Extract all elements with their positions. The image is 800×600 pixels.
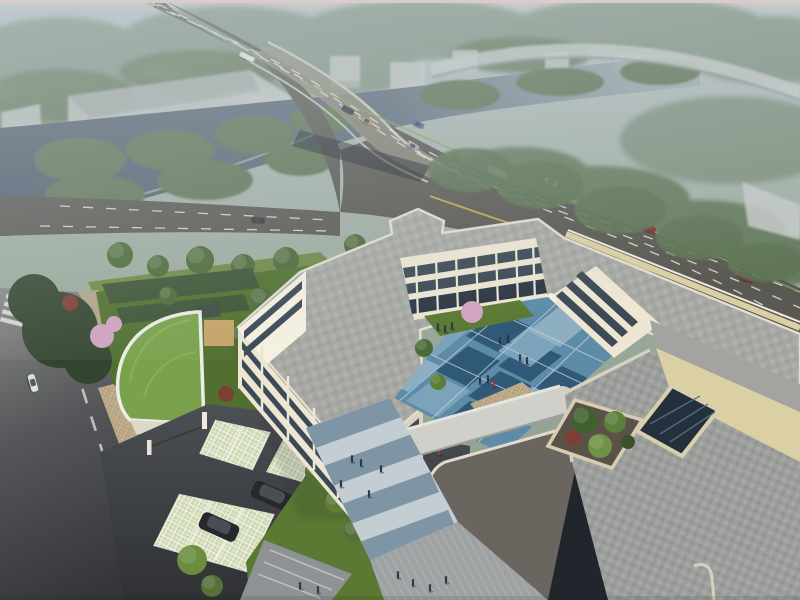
rendering-canvas	[0, 0, 800, 600]
haze-overlay	[0, 0, 800, 360]
top-border-strip	[0, 0, 800, 3]
gate-pillar-2	[147, 440, 152, 455]
bottom-vignette	[0, 596, 800, 600]
architectural-rendering	[0, 0, 800, 600]
gate-pillar-1	[202, 412, 207, 429]
